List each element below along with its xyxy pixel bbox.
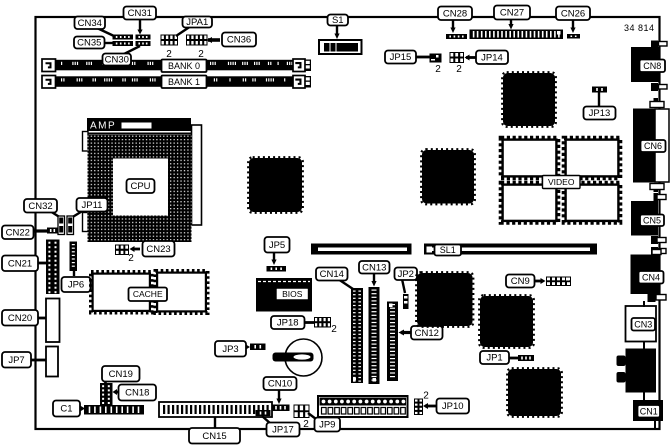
svg-text:2: 2	[435, 64, 441, 75]
svg-text:S1: S1	[332, 15, 344, 26]
svg-text:VIDEO: VIDEO	[548, 177, 575, 187]
svg-text:JP2: JP2	[398, 269, 414, 280]
svg-text:JPA1: JPA1	[186, 17, 208, 28]
svg-text:2: 2	[456, 64, 462, 75]
svg-text:CN15: CN15	[202, 431, 226, 442]
svg-text:JP6: JP6	[68, 280, 84, 291]
svg-text:CN32: CN32	[28, 201, 52, 212]
svg-text:CN8: CN8	[643, 61, 661, 71]
svg-text:JP18: JP18	[277, 318, 299, 329]
svg-text:JP14: JP14	[481, 53, 503, 64]
svg-text:JP1: JP1	[486, 353, 502, 364]
svg-text:JP10: JP10	[442, 401, 464, 412]
svg-text:2: 2	[303, 419, 309, 430]
svg-text:CN3: CN3	[634, 319, 652, 329]
svg-text:34 814: 34 814	[624, 23, 655, 33]
svg-text:2: 2	[166, 49, 172, 60]
svg-text:JP5: JP5	[269, 240, 285, 251]
svg-text:CN10: CN10	[268, 379, 292, 390]
svg-text:CN21: CN21	[8, 259, 32, 270]
svg-text:JP7: JP7	[8, 355, 24, 366]
svg-text:JP13: JP13	[589, 108, 611, 119]
svg-text:JP15: JP15	[390, 52, 412, 63]
svg-text:CN4: CN4	[642, 272, 660, 282]
svg-text:AMP: AMP	[90, 121, 116, 132]
svg-text:CN34: CN34	[78, 18, 102, 29]
svg-text:CN31: CN31	[128, 8, 152, 19]
svg-text:CN23: CN23	[146, 244, 170, 255]
svg-text:CN27: CN27	[500, 8, 524, 19]
svg-text:CN1: CN1	[640, 406, 658, 416]
svg-text:JP17: JP17	[272, 425, 294, 436]
svg-text:CN12: CN12	[415, 328, 439, 339]
svg-text:CPU: CPU	[130, 181, 150, 192]
svg-text:CN30: CN30	[105, 55, 129, 66]
svg-text:CN20: CN20	[8, 313, 32, 324]
svg-text:2: 2	[128, 253, 134, 264]
svg-text:JP9: JP9	[319, 420, 335, 431]
svg-text:CN35: CN35	[77, 38, 101, 49]
svg-text:CN9: CN9	[511, 276, 530, 287]
svg-text:BANK 0: BANK 0	[168, 61, 200, 71]
svg-text:2: 2	[423, 391, 429, 402]
svg-text:CN6: CN6	[644, 141, 662, 151]
svg-text:JP3: JP3	[222, 344, 238, 355]
svg-text:C1: C1	[60, 404, 72, 415]
svg-text:2: 2	[331, 324, 337, 335]
svg-text:SL1: SL1	[440, 245, 456, 255]
svg-text:CN28: CN28	[443, 9, 467, 20]
svg-text:CN13: CN13	[362, 263, 386, 274]
svg-text:BIOS: BIOS	[282, 289, 303, 299]
svg-text:CN5: CN5	[643, 215, 661, 225]
svg-text:CN26: CN26	[561, 9, 585, 20]
svg-text:CN22: CN22	[6, 228, 30, 239]
svg-text:CN18: CN18	[125, 388, 149, 399]
svg-text:JP11: JP11	[82, 200, 103, 211]
svg-text:BANK 1: BANK 1	[168, 77, 200, 87]
svg-text:CN19: CN19	[109, 369, 133, 380]
svg-text:CN36: CN36	[227, 35, 251, 46]
svg-text:CN14: CN14	[320, 269, 344, 280]
svg-text:2: 2	[198, 49, 204, 60]
svg-text:CACHE: CACHE	[133, 289, 163, 299]
